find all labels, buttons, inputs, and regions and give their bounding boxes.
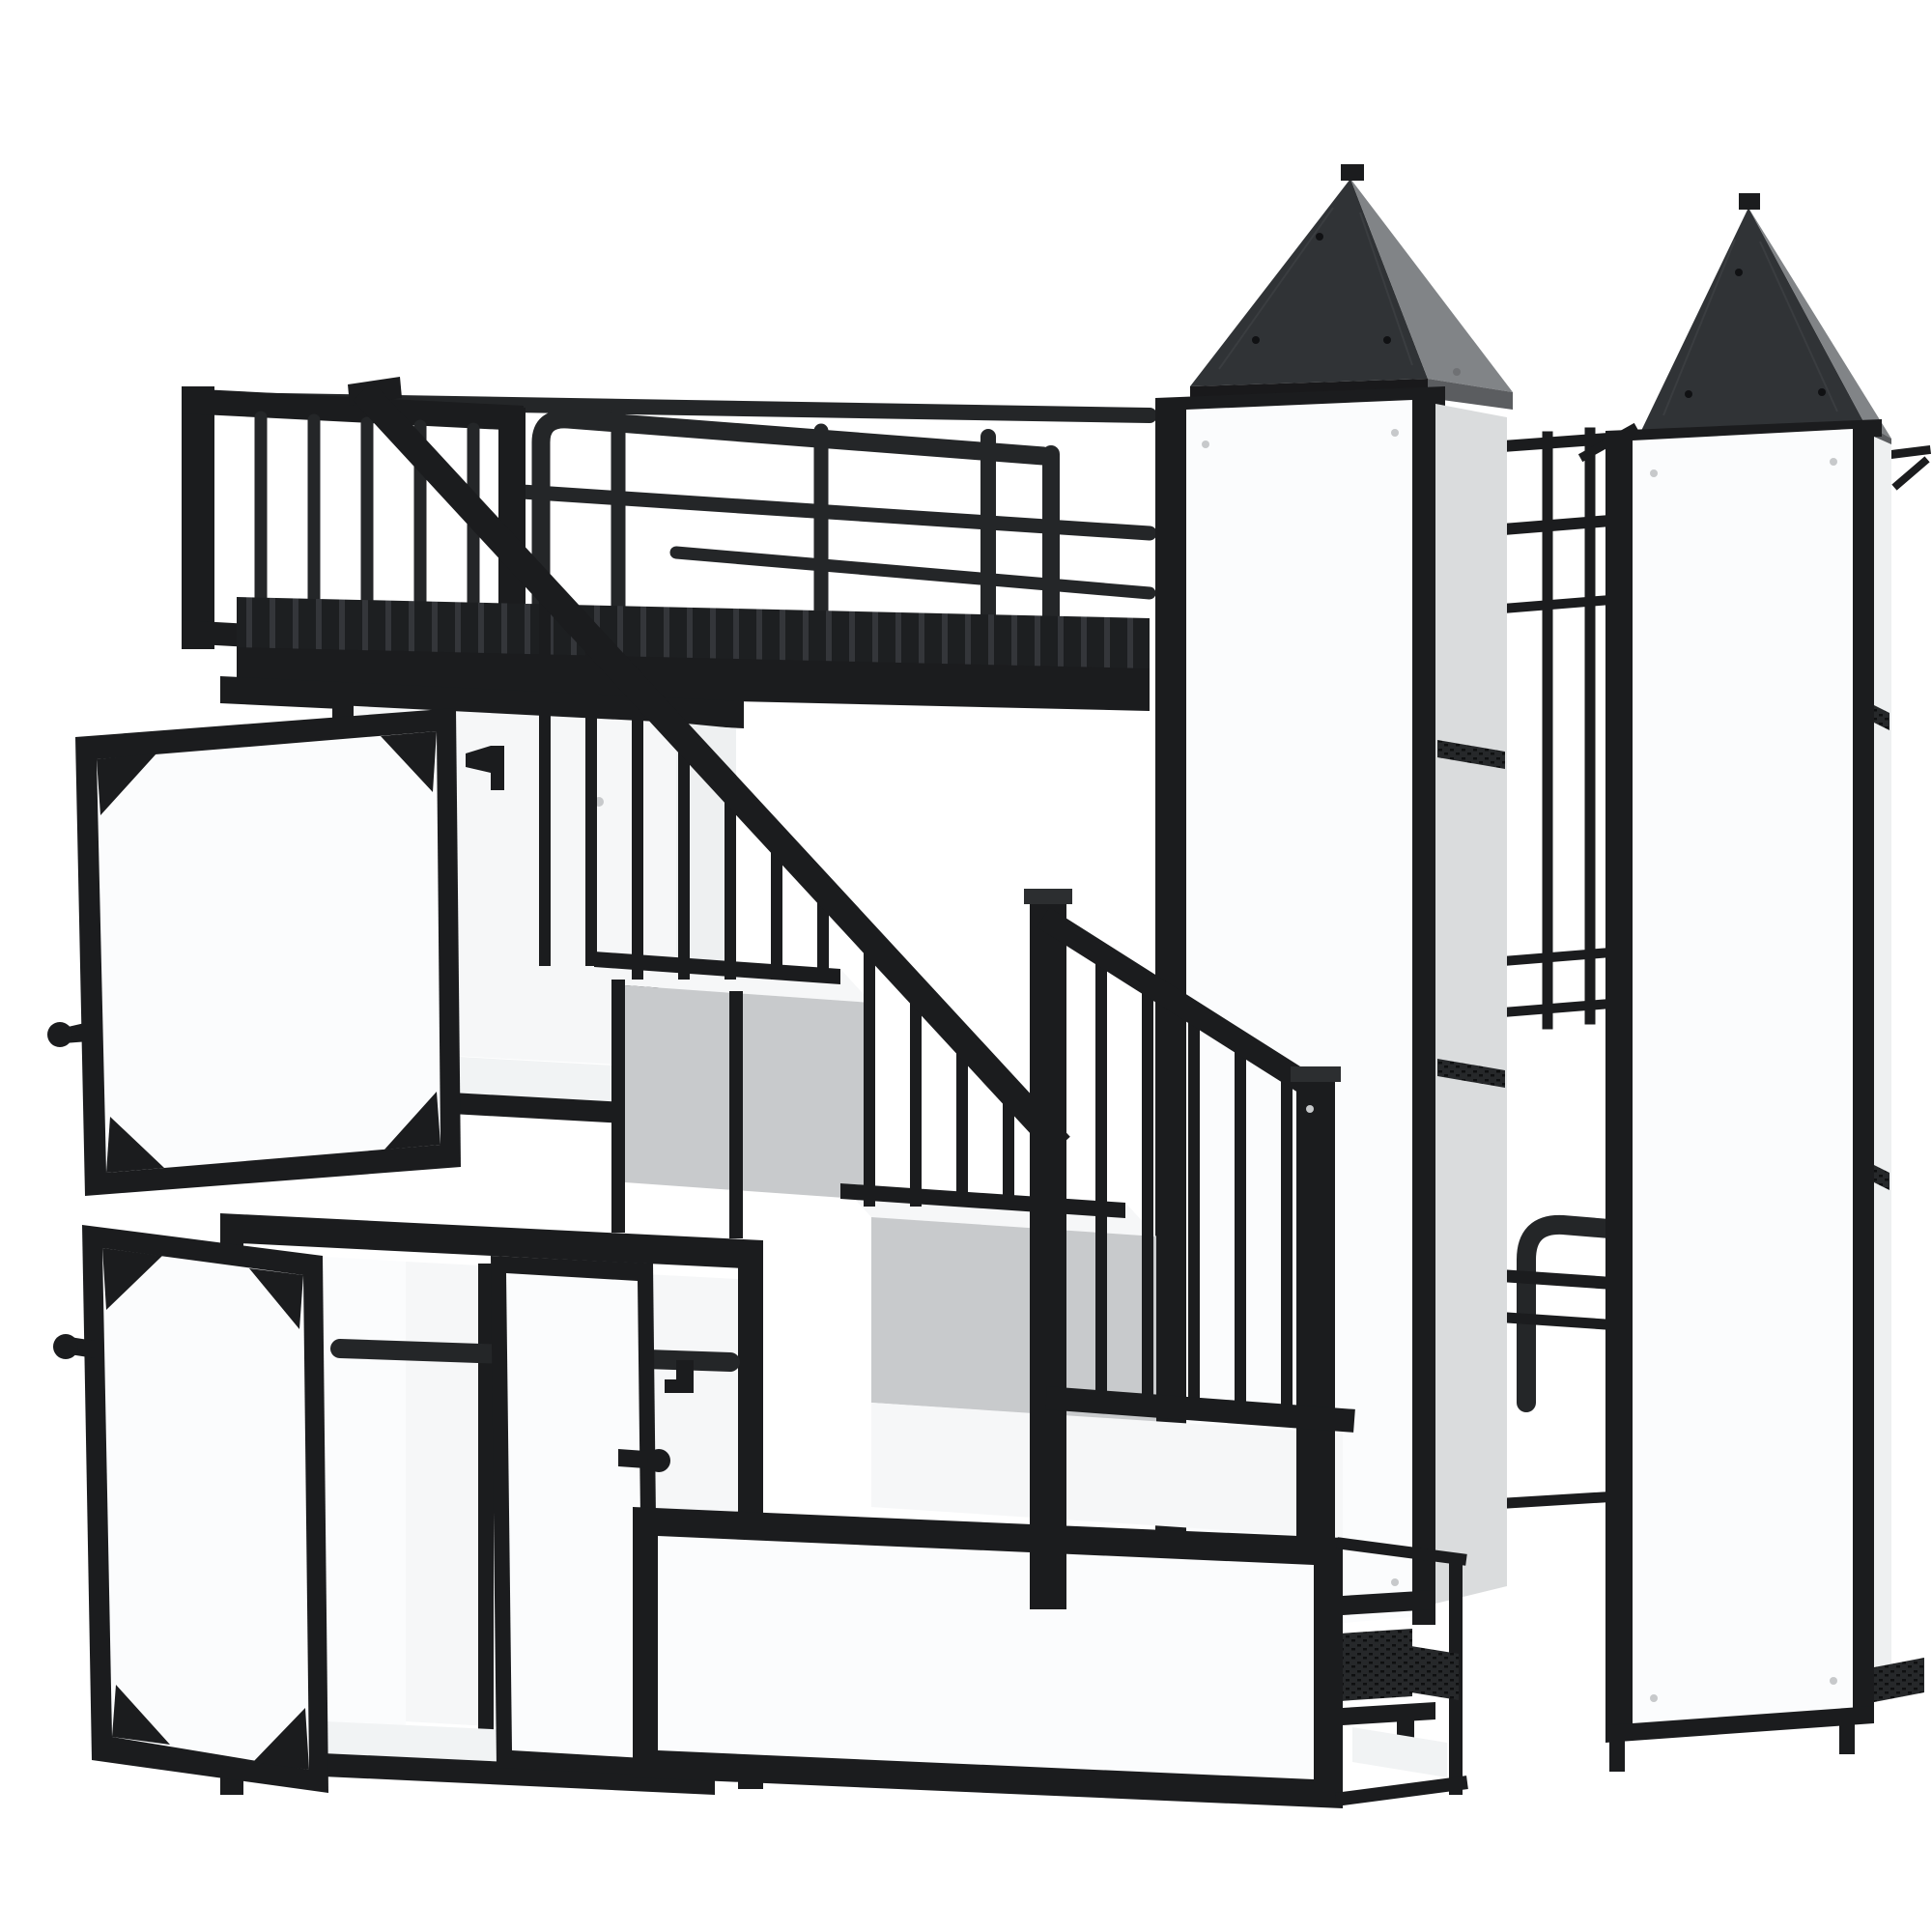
- cabinet-open-door: [47, 708, 461, 1196]
- step-side-panel: [871, 1217, 1156, 1422]
- tower-left-stile: [1605, 437, 1633, 1739]
- tower-right: [1605, 193, 1924, 1772]
- headboard-post: [182, 386, 214, 649]
- tower-inner-side: [1874, 437, 1891, 1696]
- tower-right-stile: [1853, 425, 1874, 1716]
- right-diagonal-brace: [1897, 462, 1924, 485]
- frame-rail: [1343, 1783, 1461, 1799]
- bottom-box-front-panel: [658, 1536, 1314, 1779]
- tower-spire-cap: [1341, 164, 1364, 181]
- tower-inner-side: [1435, 404, 1507, 1604]
- landing-side-panel: [625, 985, 871, 1200]
- door-knob: [647, 1449, 670, 1472]
- door-panel: [506, 1273, 643, 1758]
- back-low-tube-rail: [676, 553, 1150, 593]
- post-cap: [1024, 889, 1072, 904]
- door-panel: [102, 1248, 309, 1770]
- landing-corner-post: [611, 980, 625, 1233]
- wardrobe-open-door: [53, 1225, 328, 1793]
- tower-foot: [1839, 1723, 1855, 1754]
- product-image-canvas: [0, 0, 1932, 1932]
- door-panel: [97, 731, 440, 1173]
- wardrobe-divider: [478, 1264, 494, 1747]
- tower-front-panel: [1633, 429, 1853, 1735]
- door-knob: [47, 1022, 72, 1047]
- castle-loft-bed-render: [0, 0, 1932, 1932]
- handrail-corner-post: [1030, 900, 1066, 1609]
- landing-corner-post: [729, 991, 743, 1238]
- knob-stem: [618, 1449, 645, 1468]
- tower-foot: [1609, 1741, 1625, 1772]
- door-knob: [53, 1334, 78, 1359]
- right-rail-stub: [1895, 450, 1926, 454]
- tower-spire-cap: [1739, 193, 1760, 210]
- newel-cap: [1291, 1066, 1341, 1082]
- tower-right-stile: [1412, 396, 1435, 1625]
- newel-post: [1296, 1078, 1335, 1540]
